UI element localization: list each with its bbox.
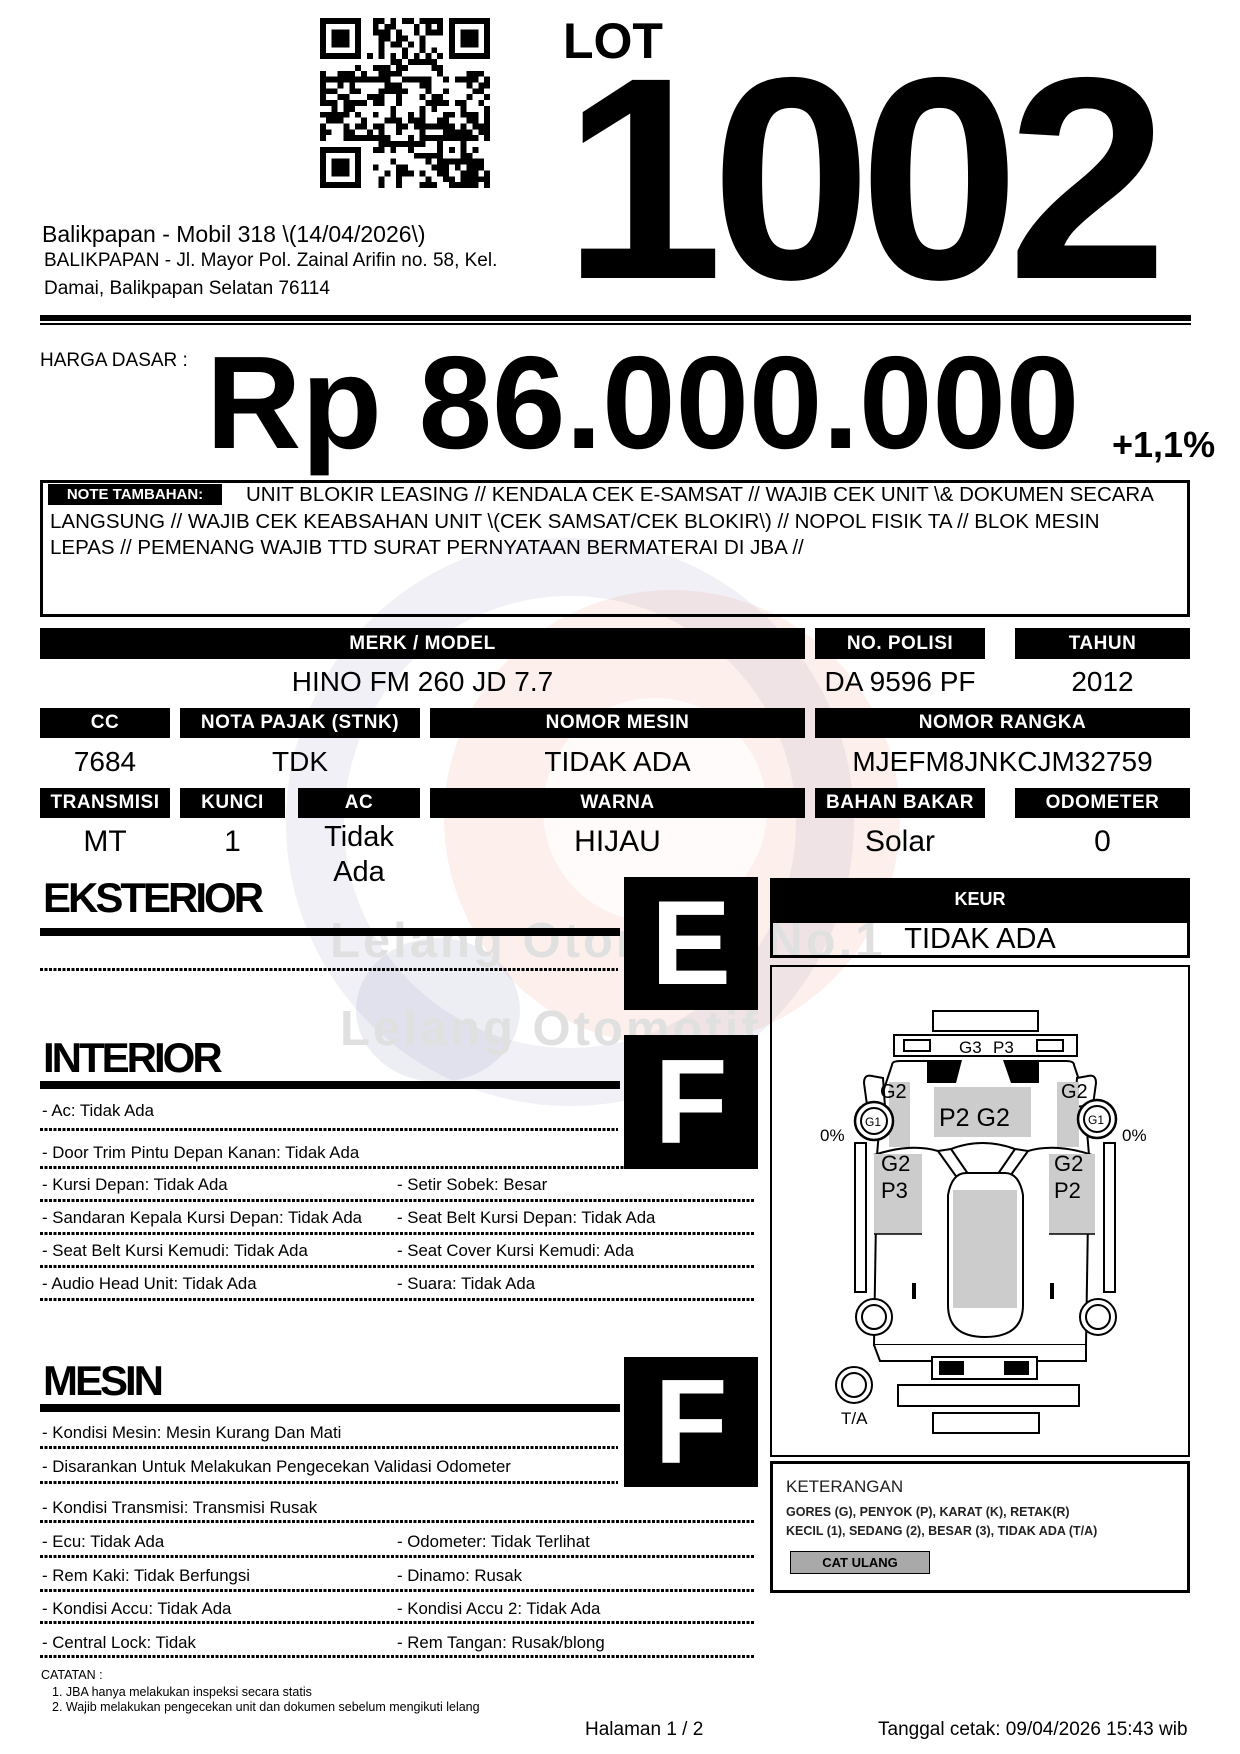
svg-text:P2 G2: P2 G2: [939, 1104, 1010, 1132]
svg-text:G1: G1: [865, 1115, 881, 1129]
svg-text:0%: 0%: [820, 1126, 845, 1145]
svg-text:0%: 0%: [1122, 1126, 1147, 1145]
svg-text:G2: G2: [881, 1151, 910, 1176]
svg-text:G3: G3: [959, 1038, 982, 1057]
svg-text:P2: P2: [1054, 1178, 1081, 1203]
svg-text:P3: P3: [993, 1038, 1014, 1057]
svg-text:P3: P3: [881, 1178, 908, 1203]
svg-text:G2: G2: [880, 1081, 907, 1103]
svg-text:T/A: T/A: [841, 1409, 868, 1428]
svg-text:G2: G2: [1061, 1081, 1088, 1103]
svg-text:G1: G1: [1088, 1113, 1104, 1127]
svg-text:G2: G2: [1054, 1151, 1083, 1176]
